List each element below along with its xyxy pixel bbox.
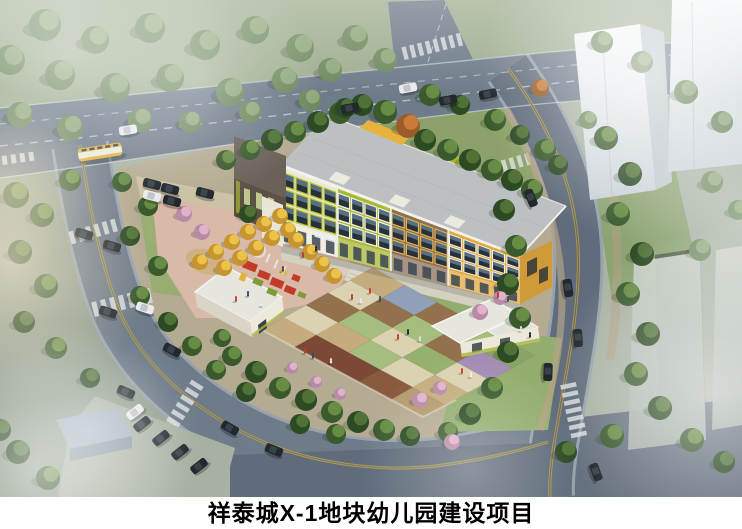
tree-highlight [197, 255, 207, 265]
caption-bar: 祥泰城X-1地块幼儿园建设项目 [0, 497, 742, 529]
tree-highlight [477, 305, 487, 315]
person-head [397, 334, 399, 336]
car [540, 363, 553, 383]
person-body [312, 355, 314, 359]
tree-highlight [229, 235, 239, 245]
storefront-glass [353, 246, 361, 261]
person-head [507, 296, 509, 298]
section-divider [390, 205, 392, 271]
tree-highlight [338, 388, 345, 395]
tree-highlight [219, 330, 230, 341]
tree-highlight [488, 160, 502, 174]
tree-highlight [296, 415, 308, 427]
tree-highlight [358, 95, 372, 109]
tree-highlight [188, 337, 200, 349]
person-head [407, 329, 409, 331]
person-body [235, 298, 237, 302]
tree-highlight [252, 362, 266, 376]
person-body [407, 331, 409, 335]
caption-text: 祥泰城X-1地块幼儿园建设项目 [208, 497, 535, 529]
person-body [529, 334, 531, 338]
tree-highlight [293, 233, 303, 243]
person-head [520, 326, 522, 328]
tree-highlight [181, 207, 191, 217]
tree-highlight [504, 342, 518, 356]
tree-highlight [277, 209, 287, 219]
tree-highlight [314, 376, 321, 383]
storefront-glass [367, 250, 375, 265]
person-body [330, 360, 332, 364]
storefront-glass [423, 266, 432, 280]
tree-highlight [421, 130, 435, 144]
person-head [312, 353, 314, 355]
tree-highlight [164, 313, 176, 325]
car-roof [345, 104, 353, 112]
person-body [247, 293, 249, 297]
person-head [497, 292, 499, 294]
car-roof [545, 367, 552, 374]
tree-highlight [242, 383, 254, 395]
person-body [282, 268, 284, 272]
person-body [507, 298, 509, 302]
person-body [379, 298, 381, 302]
tree-highlight [290, 362, 297, 369]
tree-highlight [444, 140, 458, 154]
tree-highlight [199, 225, 209, 235]
tree-highlight [221, 261, 231, 271]
car-roof [564, 283, 572, 291]
person-body [497, 294, 499, 298]
tree-highlight [500, 200, 514, 214]
tree-highlight [253, 241, 263, 251]
tree-highlight [228, 347, 240, 359]
tree-highlight [331, 269, 341, 279]
section-divider [336, 185, 338, 258]
tree-highlight [245, 206, 256, 217]
person-head [282, 266, 284, 268]
tree-highlight [332, 425, 344, 437]
person-head [315, 246, 317, 248]
person-head [247, 291, 249, 293]
car-roof [443, 96, 451, 104]
person-head [330, 358, 332, 360]
tree-highlight [512, 236, 526, 250]
person-body [369, 290, 371, 294]
person-head [379, 296, 381, 298]
tree-highlight [276, 378, 290, 392]
person-head [419, 336, 421, 338]
tree-highlight [302, 390, 316, 404]
tree-highlight [504, 274, 518, 288]
rendering-image [0, 0, 742, 497]
person-head [351, 294, 353, 296]
annex-window-2 [256, 192, 262, 210]
tree-highlight [466, 150, 480, 164]
section-divider [447, 227, 449, 286]
person-head [261, 301, 263, 303]
tree-highlight [404, 115, 419, 130]
tree-highlight [213, 245, 223, 255]
tree-highlight [319, 257, 329, 267]
storefront-glass [394, 258, 403, 272]
tree-highlight [328, 402, 342, 416]
storefront-glass [408, 262, 417, 276]
tree-highlight [237, 251, 247, 261]
tree-highlight [354, 412, 368, 426]
person-body [304, 350, 306, 354]
person-head [302, 252, 304, 254]
person-body [419, 338, 421, 342]
storefront-glass [380, 254, 388, 269]
tree-highlight [516, 308, 530, 322]
person-body [315, 248, 317, 252]
person-head [360, 298, 362, 300]
person-body [520, 328, 522, 332]
person-head [235, 296, 237, 298]
tree-highlight [314, 112, 328, 126]
person-body [351, 296, 353, 300]
tree-highlight [154, 257, 166, 269]
person-body [397, 336, 399, 340]
person-head [529, 332, 531, 334]
tree-highlight [381, 101, 396, 116]
person-body [302, 254, 304, 258]
screenshot-frame: 祥泰城X-1地块幼儿园建设项目 [0, 0, 742, 529]
person-head [304, 348, 306, 350]
tree-highlight [285, 223, 295, 233]
storefront-glass [340, 243, 348, 259]
aerial-rendering [0, 0, 742, 497]
person-head [369, 288, 371, 290]
person-body [261, 303, 263, 307]
person-body [360, 300, 362, 304]
